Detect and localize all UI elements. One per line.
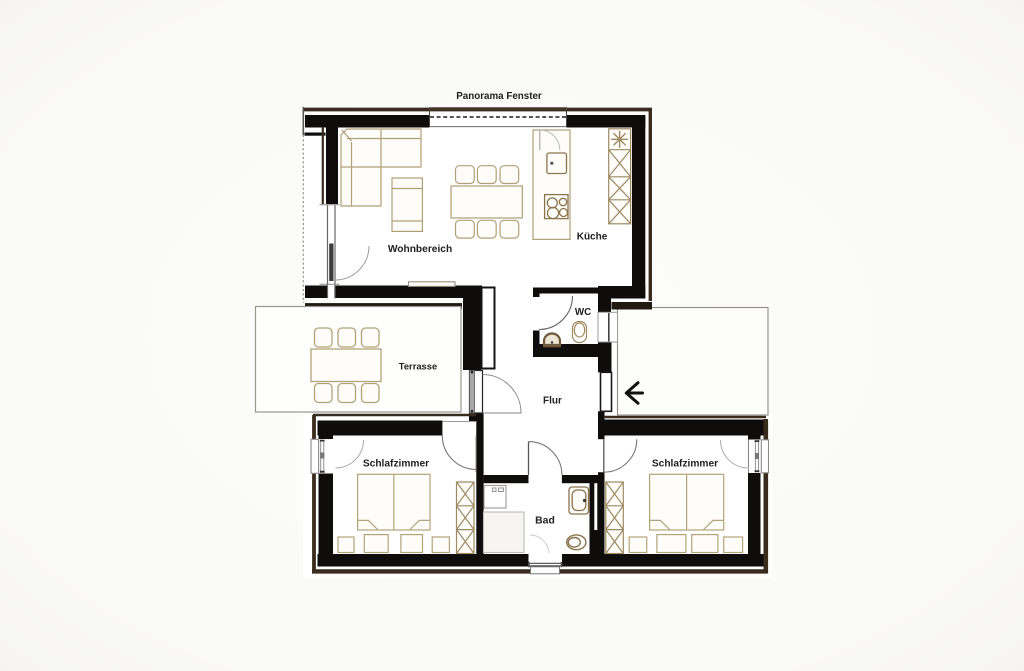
- svg-text:Schlafzimmer: Schlafzimmer: [652, 459, 718, 470]
- svg-text:Bad: Bad: [535, 516, 555, 527]
- svg-text:WC: WC: [575, 307, 591, 318]
- svg-text:Schlafzimmer: Schlafzimmer: [363, 459, 429, 470]
- svg-text:Terrasse: Terrasse: [399, 361, 437, 372]
- svg-text:Wohnbereich: Wohnbereich: [388, 244, 452, 255]
- svg-text:Küche: Küche: [577, 232, 608, 243]
- svg-text:Flur: Flur: [543, 396, 562, 407]
- svg-text:Panorama Fenster: Panorama Fenster: [456, 91, 542, 102]
